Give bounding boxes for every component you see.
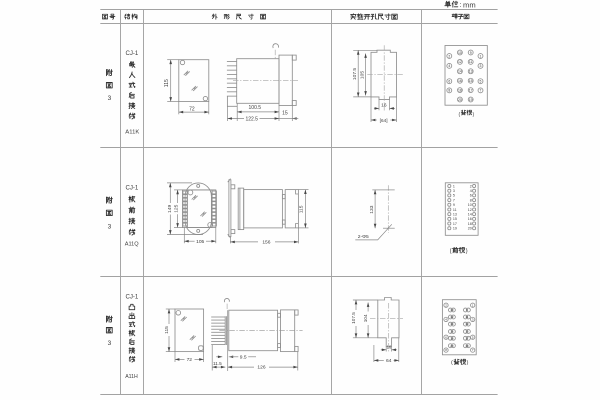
svg-text:15: 15 — [469, 79, 473, 83]
svg-text:15: 15 — [282, 111, 288, 117]
svg-text:16: 16 — [387, 345, 392, 350]
svg-text:16: 16 — [381, 102, 387, 108]
svg-text:9.5: 9.5 — [240, 355, 247, 361]
svg-text:3: 3 — [108, 224, 112, 231]
svg-text:16: 16 — [450, 330, 454, 334]
svg-text:(: ( — [451, 360, 453, 366]
svg-text:3: 3 — [453, 189, 455, 193]
svg-text:72: 72 — [189, 107, 195, 113]
svg-text:12: 12 — [468, 208, 472, 212]
svg-text:125: 125 — [173, 204, 179, 212]
svg-text:14: 14 — [458, 70, 462, 74]
svg-text:9: 9 — [470, 51, 472, 55]
svg-text:14: 14 — [450, 322, 454, 326]
svg-text:(: ( — [459, 112, 461, 118]
svg-text:11: 11 — [453, 208, 457, 212]
svg-text:19: 19 — [453, 227, 457, 231]
svg-text:15: 15 — [453, 217, 457, 221]
svg-text:18: 18 — [450, 336, 454, 340]
svg-text:20: 20 — [468, 227, 472, 231]
svg-text:CJ-1: CJ-1 — [125, 293, 138, 300]
svg-text:7: 7 — [453, 198, 455, 202]
svg-text:11: 11 — [465, 315, 468, 319]
svg-text:100.5: 100.5 — [249, 105, 262, 111]
svg-text:1: 1 — [480, 54, 482, 58]
svg-text:115: 115 — [164, 326, 170, 334]
svg-text:(: ( — [450, 249, 452, 255]
svg-text:15: 15 — [465, 330, 469, 334]
svg-text:3: 3 — [108, 340, 112, 347]
svg-text:107.5: 107.5 — [352, 68, 358, 81]
svg-text:149: 149 — [167, 205, 173, 213]
svg-text:3: 3 — [108, 95, 112, 102]
svg-text:A11H: A11H — [125, 374, 138, 380]
svg-text:6: 6 — [448, 79, 450, 83]
svg-text:): ) — [466, 249, 468, 255]
svg-text:18: 18 — [468, 222, 472, 226]
svg-text:): ) — [467, 360, 469, 366]
svg-text:72: 72 — [187, 357, 193, 363]
svg-text:4: 4 — [448, 64, 450, 68]
svg-text:20: 20 — [458, 98, 462, 102]
svg-text:115: 115 — [299, 205, 305, 213]
svg-text:CJ-1: CJ-1 — [125, 184, 138, 191]
svg-text:122.5: 122.5 — [245, 116, 258, 122]
svg-text:CJ-1: CJ-1 — [125, 50, 138, 57]
svg-text:10: 10 — [450, 308, 454, 312]
svg-text:20: 20 — [450, 344, 454, 348]
svg-text:11: 11 — [469, 60, 473, 64]
svg-text:10: 10 — [458, 51, 462, 55]
svg-text:13: 13 — [465, 322, 469, 326]
svg-text:A11Q: A11Q — [125, 241, 140, 247]
svg-text:115: 115 — [164, 79, 170, 87]
svg-text:A11K: A11K — [125, 129, 139, 135]
svg-text:126: 126 — [257, 365, 265, 371]
svg-text:[64]: [64] — [380, 118, 388, 123]
svg-text:16: 16 — [468, 217, 472, 221]
svg-text:107.5: 107.5 — [351, 312, 356, 324]
svg-text:156: 156 — [262, 240, 270, 246]
svg-text:8: 8 — [470, 198, 472, 202]
svg-text:1: 1 — [453, 184, 455, 188]
svg-text::: : — [460, 2, 462, 9]
svg-text:104: 104 — [363, 314, 368, 322]
svg-text:7: 7 — [480, 89, 482, 93]
svg-text:17: 17 — [453, 222, 457, 226]
svg-text:10: 10 — [468, 203, 472, 207]
svg-text:5: 5 — [480, 79, 482, 83]
svg-text:105: 105 — [359, 71, 365, 79]
svg-text:17: 17 — [469, 88, 473, 92]
svg-text:12: 12 — [450, 315, 454, 319]
svg-text:6: 6 — [470, 194, 472, 198]
svg-text:64: 64 — [386, 358, 392, 364]
svg-text:19: 19 — [465, 344, 469, 348]
svg-text:): ) — [473, 112, 475, 118]
svg-text:18: 18 — [458, 88, 462, 92]
svg-text:4: 4 — [470, 189, 472, 193]
svg-text:mm: mm — [463, 1, 476, 10]
svg-text:14: 14 — [468, 212, 472, 216]
svg-text:12: 12 — [458, 60, 462, 64]
svg-text:133: 133 — [369, 205, 375, 213]
svg-text:11.5: 11.5 — [213, 361, 222, 366]
svg-text:2: 2 — [470, 184, 472, 188]
svg-text:5: 5 — [453, 194, 455, 198]
svg-text:2: 2 — [448, 54, 450, 58]
svg-text:8: 8 — [448, 89, 450, 93]
svg-text:13: 13 — [453, 212, 457, 216]
svg-text:19: 19 — [469, 98, 473, 102]
svg-text:105: 105 — [196, 239, 204, 245]
svg-text:3: 3 — [480, 64, 482, 68]
svg-text:17: 17 — [465, 336, 469, 340]
svg-text:9: 9 — [453, 203, 455, 207]
svg-text:13: 13 — [469, 70, 473, 74]
svg-text:16: 16 — [458, 79, 462, 83]
svg-text:2-Φ5: 2-Φ5 — [358, 234, 369, 240]
